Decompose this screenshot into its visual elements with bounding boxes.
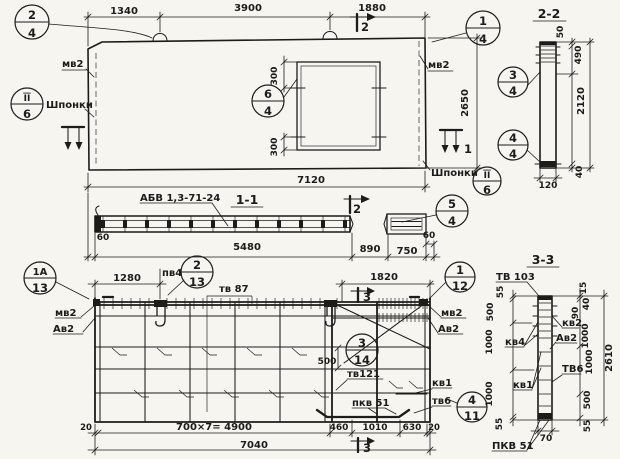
opening-ticks	[291, 88, 386, 137]
svg-text:6: 6	[483, 183, 491, 197]
dim-55-bottom-left: 55	[495, 418, 505, 431]
svg-text:4: 4	[509, 131, 517, 145]
svg-text:2: 2	[193, 258, 201, 272]
section-3-3-member	[538, 296, 552, 420]
marker-3-14: 3 14	[346, 334, 378, 367]
svg-text:1: 1	[479, 14, 487, 28]
dim-460: 460	[330, 423, 349, 433]
dim-50: 50	[556, 26, 566, 39]
dim-60-right: 60	[423, 231, 436, 241]
label-shponki-right: Шпонки	[431, 168, 478, 179]
section-2-2-title: 2-2	[538, 6, 561, 21]
label-pv4: пв4	[162, 268, 182, 279]
label-mv2-grid-right: мв2	[441, 308, 463, 319]
svg-text:2: 2	[353, 202, 361, 216]
blueprint-sheet: 300 300 1340 3900 1880 7120 2650 мв2 мв2…	[0, 0, 620, 459]
opening-inner	[301, 66, 376, 146]
svg-text:1: 1	[464, 142, 472, 156]
dim-40-33: 40	[582, 298, 592, 311]
dim-500: 500	[318, 357, 337, 367]
svg-text:1: 1	[456, 263, 464, 277]
dim-55-top: 55	[496, 286, 506, 299]
svg-text:14: 14	[354, 353, 370, 367]
marker-3-4: 3 4	[498, 67, 540, 98]
svg-text:I̅I̅: I̅I̅	[483, 169, 491, 181]
label-tv103: ТВ 103	[496, 272, 535, 283]
section-2-2: 2-2 50 490 2120 40 120 3 4 4 4	[498, 6, 594, 191]
svg-text:13: 13	[32, 281, 48, 295]
dim-2610: 2610	[604, 344, 615, 372]
cut-mark-3-bottom: 3	[351, 437, 375, 455]
dim-500-right: 500	[583, 391, 593, 410]
svg-text:4: 4	[479, 32, 487, 46]
marker-1a-13: 1А 13	[24, 262, 89, 299]
dim-1880: 1880	[358, 3, 386, 14]
marker-1-12: 1 12	[429, 262, 475, 299]
label-mv2-right: мв2	[428, 60, 450, 71]
cut-mark-1-right: 1	[440, 130, 472, 156]
section-2-2-member	[540, 42, 556, 168]
svg-text:2: 2	[28, 8, 36, 22]
opening-outer	[297, 62, 380, 150]
dim-630: 630	[403, 423, 422, 433]
dim-60-left: 60	[97, 233, 110, 243]
svg-text:1А: 1А	[33, 267, 48, 278]
dim-500-left: 500	[486, 303, 496, 322]
section-1-1-end-block	[387, 214, 426, 234]
label-pkv51-grid: пкв 51	[352, 398, 389, 409]
dim-5480: 5480	[233, 242, 261, 253]
dim-2650: 2650	[460, 89, 471, 117]
dim-300-top: 300	[270, 67, 280, 86]
dim-40: 40	[575, 166, 585, 179]
dim-1010: 1010	[362, 423, 387, 433]
plan-view: 300 300 1340 3900 1880 7120 2650 мв2 мв2…	[11, 3, 501, 197]
svg-text:12: 12	[452, 279, 468, 293]
svg-text:3: 3	[358, 336, 366, 350]
dim-700x7: 700×7= 4900	[176, 422, 252, 433]
label-kv1-33: кв1	[513, 380, 533, 391]
cut-mark-2-bottom: 2	[344, 195, 370, 216]
cut-mark-2-top: 2	[350, 13, 376, 34]
dim-300-bottom: 300	[270, 138, 280, 157]
label-kv4: кв4	[505, 337, 525, 348]
panel-edge-dashed	[96, 41, 419, 167]
marker-keys-right: I̅I̅ 6 Шпонки	[423, 161, 501, 197]
svg-text:3: 3	[509, 68, 517, 82]
reinforcement-plan: 1280 1820 пв4 тв 87 1А 13 2 13 3 14	[24, 256, 487, 455]
svg-text:4: 4	[28, 26, 36, 40]
dim-55-right: 55	[583, 420, 593, 433]
label-av2-grid-left: Ав2	[53, 324, 74, 335]
dim-750: 750	[397, 246, 418, 257]
svg-text:I̅I̅: I̅I̅	[23, 92, 31, 104]
hook-anchor-left	[154, 300, 167, 307]
svg-text:11: 11	[464, 409, 480, 423]
section-3-3-left-dim-line	[510, 290, 538, 426]
dim-20-right: 20	[428, 423, 440, 433]
dim-1280: 1280	[113, 273, 141, 284]
svg-text:4: 4	[448, 214, 456, 228]
label-tv121: тв121	[347, 369, 380, 380]
svg-text:13: 13	[189, 275, 205, 289]
label-av2-grid-right: Ав2	[438, 324, 459, 335]
section-1-1-title: 1-1	[236, 192, 259, 207]
svg-text:5: 5	[448, 197, 456, 211]
series-designation: АБВ 1,3-71-24	[140, 193, 220, 204]
section-3-3-right-dim-lines	[552, 288, 608, 426]
dim-490: 490	[574, 46, 584, 65]
label-av2-33: Ав2	[556, 333, 577, 344]
marker-4-4: 4 4	[498, 130, 540, 162]
hook-anchor-right	[324, 300, 337, 307]
dim-120: 120	[539, 181, 558, 191]
label-pkv51-33: ПКВ 51	[492, 441, 534, 452]
section-1-1: АБВ 1,3-71-24 1-1 5 4 2 60 5480 890 7	[84, 192, 468, 261]
svg-text:6: 6	[23, 107, 31, 121]
label-tv87: тв 87	[219, 284, 249, 295]
dim-1000-left-a: 1000	[485, 329, 495, 354]
svg-text:6: 6	[264, 87, 272, 101]
dim-70: 70	[540, 434, 553, 444]
dim-1820: 1820	[370, 272, 398, 283]
marker-4-11: 4 11	[447, 392, 487, 423]
dim-90: 90	[571, 307, 581, 320]
svg-text:4: 4	[468, 393, 476, 407]
section-3-3-title: 3-3	[532, 252, 555, 267]
label-kv1-grid: кв1	[432, 378, 452, 389]
stirrup-ticks	[104, 298, 337, 309]
dim-1000-right-a: 1000	[581, 323, 591, 348]
dim-2120: 2120	[576, 87, 587, 115]
panel-working-drawing: 300 300 1340 3900 1880 7120 2650 мв2 мв2…	[0, 0, 620, 459]
dim-3900: 3900	[234, 3, 262, 14]
label-mv2-left: мв2	[62, 59, 84, 70]
dim-890: 890	[360, 244, 381, 255]
svg-text:2: 2	[361, 20, 369, 34]
marker-5-4: 5 4	[402, 195, 468, 228]
svg-text:3: 3	[363, 290, 371, 304]
label-tv6-grid: тв6	[432, 396, 451, 407]
svg-text:4: 4	[509, 84, 517, 98]
svg-text:4: 4	[509, 147, 517, 161]
dim-1000-left-b: 1000	[485, 381, 495, 406]
cut-mark-1-left	[62, 127, 84, 150]
marker-keys-left: I̅I̅ 6 Шпонки	[11, 88, 94, 121]
dim-7120: 7120	[297, 175, 325, 186]
svg-text:3: 3	[363, 441, 371, 455]
plan-bottom-dim-line	[84, 171, 430, 192]
svg-text:4: 4	[264, 104, 272, 118]
dim-7040: 7040	[240, 440, 268, 451]
marker-1-4: 1 4	[432, 11, 500, 46]
dim-1340: 1340	[110, 6, 138, 17]
label-mv2-grid-left: мв2	[55, 308, 77, 319]
dim-1000-right-b: 1000	[585, 349, 595, 374]
plan-right-dim-line	[427, 34, 482, 172]
section-3-3: 3-3 ТВ 103 55 500 1000 1000 55 кв4 кв1 П…	[485, 252, 615, 452]
mv2-left-leader	[62, 69, 94, 77]
dim-15: 15	[579, 282, 589, 295]
dim-20-left: 20	[80, 423, 92, 433]
